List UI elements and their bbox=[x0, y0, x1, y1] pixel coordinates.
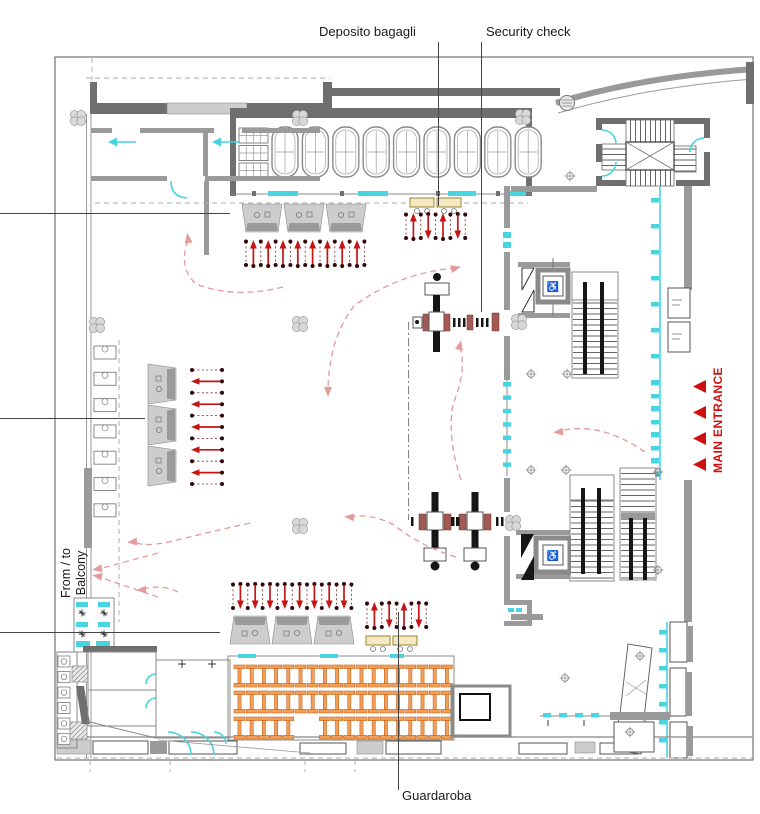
wheelchair-icon: ♿ bbox=[547, 280, 559, 293]
luggage-deposit-room bbox=[230, 108, 541, 196]
security-gate-row-1 bbox=[413, 273, 499, 352]
balcony-label-line1: From / to bbox=[59, 527, 74, 619]
luggage-shelving bbox=[272, 127, 541, 177]
deposit-tables bbox=[410, 198, 461, 214]
cloakroom-tables bbox=[366, 636, 417, 652]
coat-racks-row-1 bbox=[234, 665, 452, 687]
elevator-upper: ♿ bbox=[518, 258, 570, 318]
queue-arrows-top bbox=[244, 240, 366, 269]
deposit-counters-top bbox=[242, 204, 366, 232]
balcony-label-line2: Balcony bbox=[74, 527, 89, 619]
door-arrow-icon bbox=[108, 138, 136, 147]
queue-arrows-deposit bbox=[404, 212, 467, 241]
main-entrance-label: MAIN ENTRANCE bbox=[711, 352, 725, 488]
coat-racks-row-3 bbox=[234, 717, 452, 739]
balcony-label: From / to Balcony bbox=[59, 527, 89, 619]
guardaroba-label: Guardaroba bbox=[402, 788, 471, 803]
queue-arrows-cloakroom bbox=[365, 601, 428, 630]
cloakroom-office bbox=[452, 686, 510, 736]
ticket-desks-left bbox=[148, 364, 176, 486]
elevator-lower: ♿ bbox=[516, 530, 570, 580]
cloakroom-room bbox=[228, 654, 454, 740]
wall-radiators bbox=[94, 346, 116, 517]
column-symbol bbox=[560, 96, 575, 111]
locker-cabinets bbox=[239, 128, 268, 178]
coat-racks-row-2 bbox=[234, 691, 452, 713]
security-check-label: Security check bbox=[486, 24, 571, 39]
floor-plan-page: ♿ ♿ bbox=[0, 0, 760, 814]
queue-arrows-left bbox=[190, 368, 224, 486]
entrance-doors bbox=[651, 381, 659, 477]
top-exterior-walls bbox=[86, 58, 754, 115]
staircase-top-right bbox=[596, 118, 710, 186]
left-wall bbox=[74, 114, 119, 758]
main-entrance-arrows bbox=[693, 380, 706, 471]
deposito-bagagli-label: Deposito bagagli bbox=[319, 24, 416, 39]
staircase-lower-mid bbox=[570, 475, 614, 581]
floor-plan-drawing: ♿ ♿ bbox=[0, 0, 760, 814]
staircase-lower-right bbox=[620, 468, 656, 580]
security-gate-row-2 bbox=[409, 322, 504, 571]
wheelchair-icon: ♿ bbox=[547, 549, 559, 562]
staircase-upper-right bbox=[572, 272, 618, 378]
cloakroom-counters-bottom bbox=[230, 616, 354, 644]
queue-arrows-bottom bbox=[231, 582, 353, 610]
